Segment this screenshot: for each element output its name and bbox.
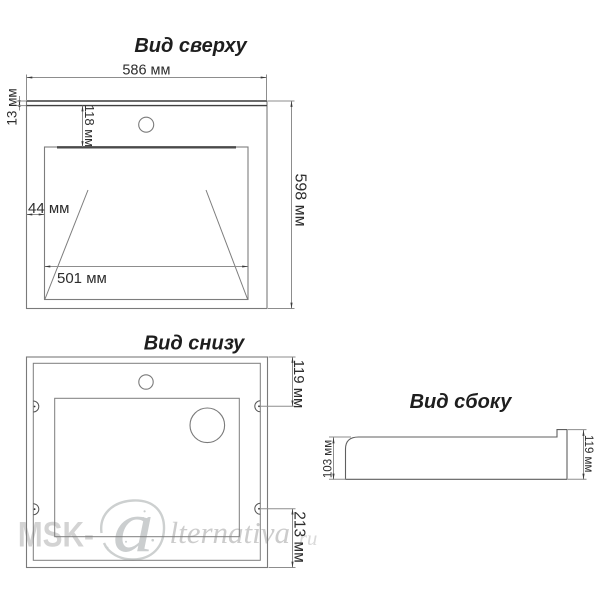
svg-text:213 мм: 213 мм — [291, 511, 308, 562]
svg-text:44 мм: 44 мм — [28, 200, 69, 217]
svg-text:119 мм: 119 мм — [582, 435, 594, 472]
svg-text:a: a — [113, 487, 154, 568]
svg-text:119 мм: 119 мм — [290, 360, 307, 409]
svg-text:Вид сверху: Вид сверху — [134, 35, 247, 57]
svg-text:598 мм: 598 мм — [292, 173, 309, 226]
svg-text:MSK-: MSK- — [18, 516, 94, 555]
svg-text:118 мм: 118 мм — [82, 105, 97, 147]
svg-text:Вид сбоку: Вид сбоку — [410, 391, 513, 413]
svg-text:Вид снизу: Вид снизу — [144, 333, 245, 355]
svg-text:501 мм: 501 мм — [57, 270, 107, 287]
svg-text:lternativa: lternativa — [170, 515, 291, 550]
svg-text:13 мм: 13 мм — [5, 88, 20, 125]
svg-text:103 мм: 103 мм — [323, 440, 335, 478]
svg-text:586 мм: 586 мм — [122, 63, 170, 79]
